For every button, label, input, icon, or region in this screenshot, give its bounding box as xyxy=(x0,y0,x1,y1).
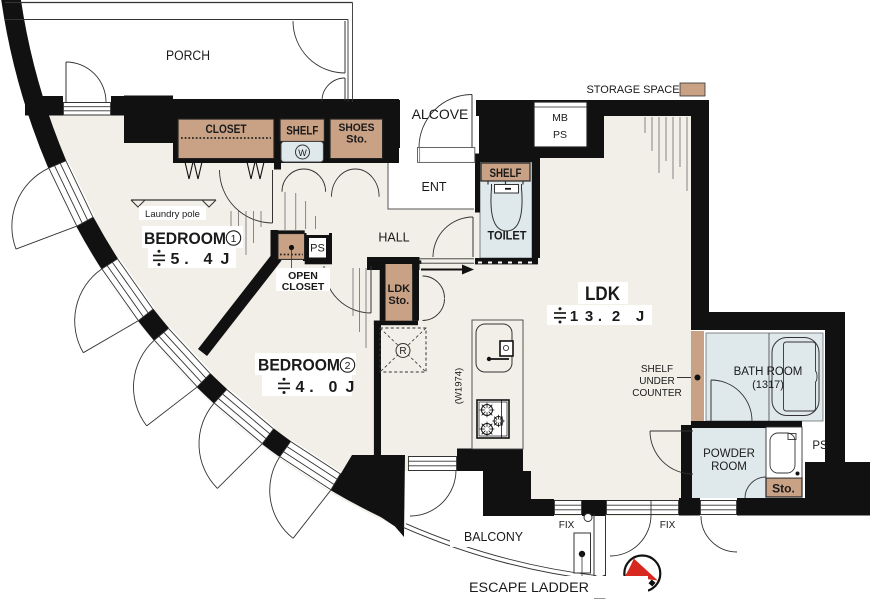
svg-text:SHELF: SHELF xyxy=(641,364,673,375)
svg-text:UNDER: UNDER xyxy=(639,376,675,387)
svg-text:LDK: LDK xyxy=(585,284,620,305)
svg-text:PS: PS xyxy=(553,129,567,141)
svg-text:Sto.: Sto. xyxy=(388,295,409,307)
svg-text:1: 1 xyxy=(570,308,578,325)
svg-text:2: 2 xyxy=(345,360,351,372)
svg-text:POWDER: POWDER xyxy=(703,448,755,460)
svg-text:4: 4 xyxy=(296,379,305,396)
svg-text:4: 4 xyxy=(204,251,213,268)
svg-text:SHELF: SHELF xyxy=(490,168,522,180)
svg-text:5: 5 xyxy=(171,251,180,268)
svg-text:MB: MB xyxy=(552,112,568,124)
svg-text:(W1974): (W1974) xyxy=(454,368,465,404)
svg-text:Sto.: Sto. xyxy=(772,482,795,496)
svg-text:R: R xyxy=(399,346,406,357)
svg-text:J: J xyxy=(636,308,644,325)
svg-text:SHELF: SHELF xyxy=(286,126,318,138)
svg-text:PS: PS xyxy=(310,243,325,255)
svg-text:.: . xyxy=(184,251,188,268)
svg-text:W: W xyxy=(298,148,307,158)
svg-text:LDK: LDK xyxy=(387,283,410,295)
svg-text:FIX: FIX xyxy=(559,520,575,531)
svg-text:BALCONY: BALCONY xyxy=(464,530,524,544)
svg-text:.: . xyxy=(309,379,313,396)
svg-text:0: 0 xyxy=(329,379,338,396)
svg-text:ESCAPE LADDER: ESCAPE LADDER xyxy=(469,580,589,595)
svg-text:J: J xyxy=(221,251,230,268)
svg-text:Laundry pole: Laundry pole xyxy=(145,209,200,220)
svg-text:CLOSET: CLOSET xyxy=(282,281,325,293)
svg-text:BEDROOM: BEDROOM xyxy=(144,229,226,248)
svg-text:FIX: FIX xyxy=(660,520,676,531)
svg-text:HALL: HALL xyxy=(378,231,409,245)
svg-text:BEDROOM: BEDROOM xyxy=(258,356,340,375)
svg-text:3: 3 xyxy=(585,308,593,325)
svg-text:SHOES: SHOES xyxy=(339,122,375,134)
svg-text:TOILET: TOILET xyxy=(488,229,528,243)
svg-text:.: . xyxy=(598,308,602,325)
svg-text:ENT: ENT xyxy=(422,180,447,194)
svg-text:(1317): (1317) xyxy=(752,379,784,391)
svg-text:J: J xyxy=(346,379,355,396)
svg-text:CLOSET: CLOSET xyxy=(206,124,247,136)
svg-text:STORAGE SPACE: STORAGE SPACE xyxy=(586,84,679,96)
svg-text:BATH ROOM: BATH ROOM xyxy=(734,366,803,378)
svg-text:2: 2 xyxy=(612,308,620,325)
svg-text:PS: PS xyxy=(812,440,828,452)
svg-text:ALCOVE: ALCOVE xyxy=(412,106,469,122)
svg-text:PORCH: PORCH xyxy=(166,48,210,63)
svg-text:1: 1 xyxy=(231,233,237,245)
svg-text:Sto.: Sto. xyxy=(346,134,367,146)
svg-text:COUNTER: COUNTER xyxy=(632,388,681,399)
svg-text:ROOM: ROOM xyxy=(711,461,747,473)
